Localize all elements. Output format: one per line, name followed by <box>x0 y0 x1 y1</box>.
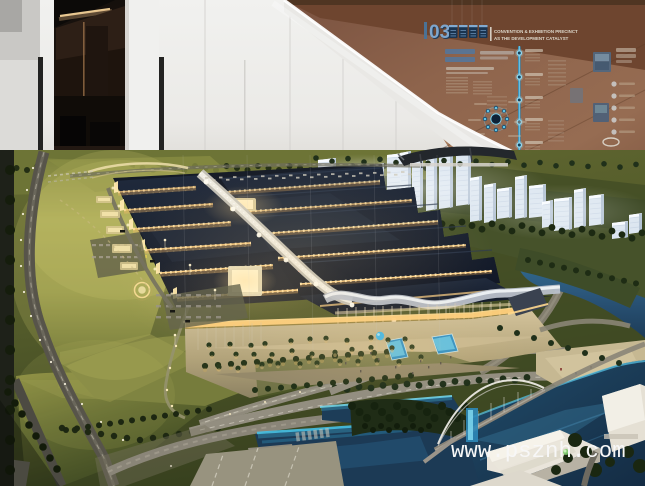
svg-text:www.psznh.com: www.psznh.com <box>451 438 626 464</box>
svg-text:CONVENTION & EXHIBITION PRECIN: CONVENTION & EXHIBITION PRECINCT <box>494 29 578 34</box>
svg-text:AS THE DEVELOPMENT CATALYST: AS THE DEVELOPMENT CATALYST <box>494 36 569 41</box>
svg-text:03: 03 <box>429 22 450 43</box>
